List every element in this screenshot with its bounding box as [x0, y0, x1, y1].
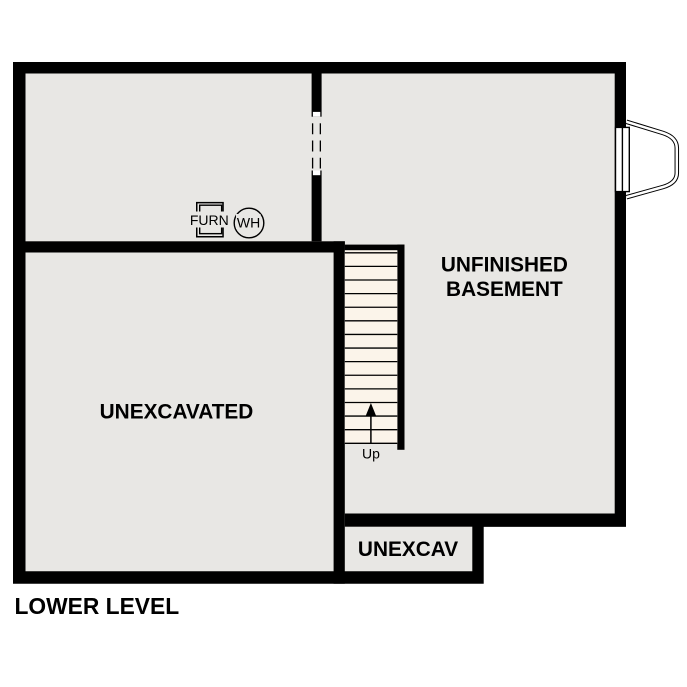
svg-text:WH: WH [237, 214, 260, 230]
svg-text:UNFINISHED: UNFINISHED [441, 254, 568, 277]
svg-text:UNEXCAV: UNEXCAV [358, 538, 458, 561]
svg-text:LOWER LEVEL: LOWER LEVEL [15, 593, 180, 619]
svg-text:BASEMENT: BASEMENT [446, 278, 563, 301]
svg-text:UNEXCAVATED: UNEXCAVATED [100, 400, 254, 423]
svg-text:Up: Up [362, 446, 380, 462]
svg-text:FURN: FURN [190, 212, 229, 228]
